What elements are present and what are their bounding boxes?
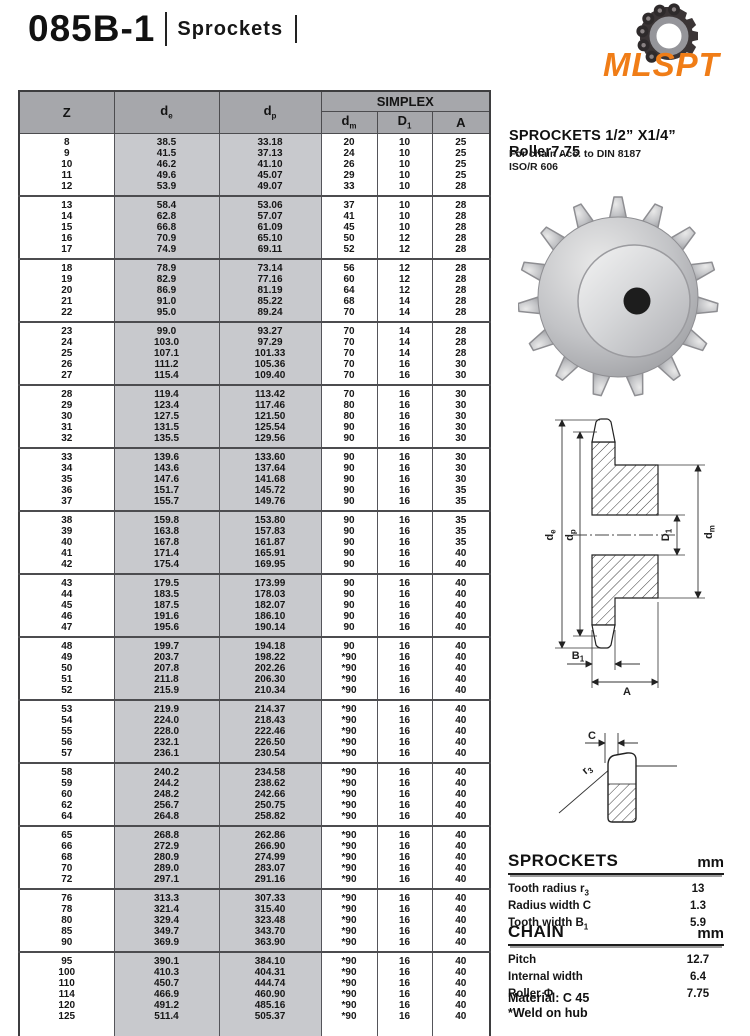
table-cell: 90 <box>321 589 377 600</box>
table-row: 1046.241.10261025 <box>19 159 490 170</box>
table-cell: 39 <box>19 526 114 537</box>
table-cell: 410.3 <box>114 967 219 978</box>
table-cell: 16 <box>377 1000 432 1011</box>
table-cell: 90 <box>321 611 377 622</box>
table-cell: 16 <box>377 1011 432 1036</box>
table-cell: 60 <box>19 789 114 800</box>
table-cell: 147.6 <box>114 474 219 485</box>
chain-spec-heading: CHAIN <box>508 922 564 942</box>
table-row: 25107.1101.33701428 <box>19 348 490 359</box>
table-cell: 30 <box>432 400 490 411</box>
table-cell: 52 <box>19 685 114 700</box>
table-cell: 236.1 <box>114 748 219 763</box>
table-cell: 46 <box>19 611 114 622</box>
table-row: 35147.6141.68901630 <box>19 474 490 485</box>
table-cell: 40 <box>432 763 490 778</box>
spec-value: 13 <box>672 883 724 900</box>
table-cell: 70 <box>321 385 377 400</box>
table-cell: 171.4 <box>114 548 219 559</box>
table-cell: 16 <box>377 715 432 726</box>
row-group: 838.533.18201025941.537.132410251046.241… <box>19 133 490 196</box>
table-cell: 16 <box>377 411 432 422</box>
table-cell: 28 <box>432 259 490 274</box>
table-row: 941.537.13241025 <box>19 148 490 159</box>
table-cell: 135.5 <box>114 433 219 448</box>
dimension-table-wrap: Z de dp SIMPLEX dm D1 A 838.533.18201025… <box>18 90 491 1036</box>
table-cell: 272.9 <box>114 841 219 852</box>
row-group: 53219.9214.37*90164054224.0218.43*901640… <box>19 700 490 763</box>
table-cell: *90 <box>321 978 377 989</box>
table-cell: 199.7 <box>114 637 219 652</box>
table-row: 31131.5125.54901630 <box>19 422 490 433</box>
table-row: 29123.4117.46801630 <box>19 400 490 411</box>
table-cell: 37 <box>321 196 377 211</box>
table-cell: 149.76 <box>219 496 321 511</box>
table-cell: 16 <box>377 863 432 874</box>
table-row: 26111.2105.36701630 <box>19 359 490 370</box>
table-cell: 97.29 <box>219 337 321 348</box>
table-cell: 28 <box>432 233 490 244</box>
table-cell: 28 <box>432 285 490 296</box>
table-cell: 40 <box>432 952 490 967</box>
table-cell: 250.75 <box>219 800 321 811</box>
table-cell: 29 <box>321 170 377 181</box>
table-cell: 16 <box>377 385 432 400</box>
table-cell: 120 <box>19 1000 114 1011</box>
table-row: 55228.0222.46*901640 <box>19 726 490 737</box>
table-cell: 34 <box>19 463 114 474</box>
table-cell: 16 <box>377 622 432 637</box>
table-cell: 109.40 <box>219 370 321 385</box>
table-row: 85349.7343.70*901640 <box>19 926 490 937</box>
table-cell: 40 <box>432 789 490 800</box>
table-cell: 70 <box>321 370 377 385</box>
table-row: 1774.969.11521228 <box>19 244 490 259</box>
table-cell: 18 <box>19 259 114 274</box>
table-cell: 41 <box>19 548 114 559</box>
table-cell: 280.9 <box>114 852 219 863</box>
table-cell: 195.6 <box>114 622 219 637</box>
table-cell: 16 <box>377 674 432 685</box>
table-cell: 20 <box>321 133 377 148</box>
table-cell: 450.7 <box>114 978 219 989</box>
table-cell: 248.2 <box>114 789 219 800</box>
table-cell: 80 <box>19 915 114 926</box>
table-row: 2399.093.27701428 <box>19 322 490 337</box>
table-cell: 40 <box>432 600 490 611</box>
table-cell: 16 <box>377 811 432 826</box>
row-group: 76313.3307.33*90164078321.4315.40*901640… <box>19 889 490 952</box>
table-cell: 78 <box>19 904 114 915</box>
table-cell: 16 <box>377 685 432 700</box>
dim-label-b1: B1 <box>572 650 585 664</box>
table-cell: 70 <box>321 348 377 359</box>
row-group: 38159.8153.8090163539163.8157.8390163540… <box>19 511 490 574</box>
product-standard-line1: For chain Acc. to DIN 8187 <box>509 148 641 160</box>
table-cell: 50 <box>19 663 114 674</box>
table-cell: 21 <box>19 296 114 307</box>
table-row: 1253.949.07331028 <box>19 181 490 196</box>
table-cell: 163.8 <box>114 526 219 537</box>
table-cell: *90 <box>321 1000 377 1011</box>
table-cell: 12 <box>377 259 432 274</box>
table-cell: 30 <box>19 411 114 422</box>
table-cell: 70 <box>321 322 377 337</box>
table-cell: 16 <box>377 589 432 600</box>
table-cell: 10 <box>377 159 432 170</box>
table-row: 58240.2234.58*901640 <box>19 763 490 778</box>
table-row: 68280.9274.99*901640 <box>19 852 490 863</box>
spec-row-tooth-radius: Tooth radius r3 13 <box>508 883 724 900</box>
table-cell: 226.50 <box>219 737 321 748</box>
table-cell: 165.91 <box>219 548 321 559</box>
table-cell: 40 <box>432 874 490 889</box>
divider <box>165 12 167 46</box>
table-cell: 40 <box>432 926 490 937</box>
table-cell: 61.09 <box>219 222 321 233</box>
table-cell: 210.34 <box>219 685 321 700</box>
table-cell: 28 <box>432 244 490 259</box>
table-cell: 16 <box>377 778 432 789</box>
table-cell: *90 <box>321 889 377 904</box>
table-cell: *90 <box>321 748 377 763</box>
table-cell: 99.0 <box>114 322 219 337</box>
table-cell: *90 <box>321 863 377 874</box>
table-row: 37155.7149.76901635 <box>19 496 490 511</box>
table-cell: 90 <box>321 463 377 474</box>
table-cell: 12 <box>377 285 432 296</box>
table-cell: 65 <box>19 826 114 841</box>
table-cell: 297.1 <box>114 874 219 889</box>
table-row: 47195.6190.14901640 <box>19 622 490 637</box>
table-cell: 256.7 <box>114 800 219 811</box>
table-cell: 16 <box>377 400 432 411</box>
table-cell: 28 <box>432 307 490 322</box>
table-cell: 56 <box>19 737 114 748</box>
table-cell: 35 <box>432 511 490 526</box>
table-cell: 85.22 <box>219 296 321 307</box>
table-cell: 22 <box>19 307 114 322</box>
table-cell: 42 <box>19 559 114 574</box>
table-cell: *90 <box>321 915 377 926</box>
table-cell: 16 <box>377 511 432 526</box>
table-row: 57236.1230.54*901640 <box>19 748 490 763</box>
table-cell: 59 <box>19 778 114 789</box>
table-cell: 28 <box>432 181 490 196</box>
table-cell: 51 <box>19 674 114 685</box>
table-cell: 70 <box>321 307 377 322</box>
table-cell: 16 <box>377 611 432 622</box>
table-row: 46191.6186.10901640 <box>19 611 490 622</box>
table-cell: 155.7 <box>114 496 219 511</box>
table-cell: 50 <box>321 233 377 244</box>
table-cell: 30 <box>432 359 490 370</box>
table-cell: 283.07 <box>219 863 321 874</box>
table-cell: 215.9 <box>114 685 219 700</box>
table-cell: 121.50 <box>219 411 321 422</box>
table-cell: 232.1 <box>114 737 219 748</box>
table-cell: 262.86 <box>219 826 321 841</box>
spec-value: 7.75 <box>672 988 724 1005</box>
table-row: 62256.7250.75*901640 <box>19 800 490 811</box>
table-cell: 90 <box>321 511 377 526</box>
table-cell: 14 <box>377 337 432 348</box>
table-cell: 8 <box>19 133 114 148</box>
spec-value: 1.3 <box>672 900 724 917</box>
table-cell: 65.10 <box>219 233 321 244</box>
table-cell: 313.3 <box>114 889 219 904</box>
table-cell: 16 <box>377 422 432 433</box>
table-cell: 202.26 <box>219 663 321 674</box>
table-row: 40167.8161.87901635 <box>19 537 490 548</box>
table-row: 45187.5182.07901640 <box>19 600 490 611</box>
table-cell: 16 <box>377 841 432 852</box>
table-cell: 35 <box>432 526 490 537</box>
table-cell: 32 <box>19 433 114 448</box>
row-group: 65268.8262.86*90164066272.9266.90*901640… <box>19 826 490 889</box>
col-header-dp: dp <box>219 91 321 133</box>
table-cell: 30 <box>432 448 490 463</box>
table-cell: 41 <box>321 211 377 222</box>
table-cell: 157.83 <box>219 526 321 537</box>
table-cell: 105.36 <box>219 359 321 370</box>
table-cell: 123.4 <box>114 400 219 411</box>
table-row: 2191.085.22681428 <box>19 296 490 307</box>
table-cell: 64 <box>321 285 377 296</box>
table-cell: 384.10 <box>219 952 321 967</box>
table-row: 1149.645.07291025 <box>19 170 490 181</box>
table-cell: 35 <box>19 474 114 485</box>
table-cell: 143.6 <box>114 463 219 474</box>
table-cell: 90 <box>321 485 377 496</box>
table-cell: 16 <box>19 233 114 244</box>
table-cell: 207.8 <box>114 663 219 674</box>
table-cell: 16 <box>377 537 432 548</box>
table-cell: 40 <box>432 611 490 622</box>
table-cell: 14 <box>377 296 432 307</box>
table-row: 100410.3404.31*901640 <box>19 967 490 978</box>
table-cell: 30 <box>432 463 490 474</box>
table-cell: 16 <box>377 748 432 763</box>
table-cell: *90 <box>321 926 377 937</box>
table-cell: *90 <box>321 674 377 685</box>
table-cell: *90 <box>321 967 377 978</box>
table-cell: 349.7 <box>114 926 219 937</box>
table-cell: 35 <box>432 537 490 548</box>
table-cell: 16 <box>377 433 432 448</box>
table-cell: 16 <box>377 874 432 889</box>
table-cell: 151.7 <box>114 485 219 496</box>
table-cell: 45 <box>19 600 114 611</box>
col-header-z: Z <box>19 91 114 133</box>
table-cell: 16 <box>377 637 432 652</box>
spec-value: 6.4 <box>672 971 724 988</box>
catalog-page: 085B-1 Sprockets <box>0 0 750 1036</box>
table-row: 76313.3307.33*901640 <box>19 889 490 904</box>
table-cell: 511.4 <box>114 1011 219 1036</box>
table-cell: 28 <box>432 296 490 307</box>
table-cell: 190.14 <box>219 622 321 637</box>
row-group: 1878.973.145612281982.977.166012282086.9… <box>19 259 490 322</box>
table-cell: 16 <box>377 726 432 737</box>
table-cell: *90 <box>321 800 377 811</box>
table-cell: 390.1 <box>114 952 219 967</box>
table-cell: 12 <box>19 181 114 196</box>
table-cell: 31 <box>19 422 114 433</box>
table-cell: 12 <box>377 233 432 244</box>
table-cell: 56 <box>321 259 377 274</box>
row-group: 58240.2234.58*90164059244.2238.62*901640… <box>19 763 490 826</box>
table-cell: 28 <box>432 348 490 359</box>
table-cell: 43 <box>19 574 114 589</box>
table-cell: 321.4 <box>114 904 219 915</box>
brand-name: MLSPT <box>603 48 748 81</box>
table-cell: 198.22 <box>219 652 321 663</box>
table-cell: 466.9 <box>114 989 219 1000</box>
table-row: 78321.4315.40*901640 <box>19 904 490 915</box>
table-cell: 25 <box>432 170 490 181</box>
table-cell: *90 <box>321 811 377 826</box>
table-cell: *90 <box>321 737 377 748</box>
weld-note: *Weld on hub <box>508 1006 588 1020</box>
table-cell: 16 <box>377 737 432 748</box>
table-cell: 242.66 <box>219 789 321 800</box>
table-cell: *90 <box>321 700 377 715</box>
table-cell: 40 <box>432 889 490 904</box>
table-cell: 40 <box>432 637 490 652</box>
table-cell: 90 <box>321 537 377 548</box>
table-cell: 64 <box>19 811 114 826</box>
table-cell: 33.18 <box>219 133 321 148</box>
table-cell: 90 <box>321 574 377 589</box>
table-row: 24103.097.29701428 <box>19 337 490 348</box>
table-cell: 40 <box>432 978 490 989</box>
table-cell: 38 <box>19 511 114 526</box>
table-cell: 46.2 <box>114 159 219 170</box>
sprockets-spec-header: SPROCKETS mm <box>508 851 724 875</box>
table-cell: 228.0 <box>114 726 219 737</box>
table-cell: 13 <box>19 196 114 211</box>
table-cell: 16 <box>377 600 432 611</box>
product-standard-line2: ISO/R 606 <box>509 161 558 173</box>
table-row: 1670.965.10501228 <box>19 233 490 244</box>
col-header-d1: D1 <box>377 111 432 133</box>
table-cell: 19 <box>19 274 114 285</box>
table-cell: 206.30 <box>219 674 321 685</box>
table-cell: 40 <box>432 967 490 978</box>
table-cell: 30 <box>432 385 490 400</box>
table-cell: 145.72 <box>219 485 321 496</box>
row-group: 1358.453.063710281462.857.074110281566.8… <box>19 196 490 259</box>
table-row: 48199.7194.18901640 <box>19 637 490 652</box>
table-row: 2086.981.19641228 <box>19 285 490 296</box>
table-cell: 40 <box>432 548 490 559</box>
table-cell: 115.4 <box>114 370 219 385</box>
table-cell: 90 <box>321 622 377 637</box>
table-cell: 291.16 <box>219 874 321 889</box>
table-cell: 48 <box>19 637 114 652</box>
table-row: 51211.8206.30*901640 <box>19 674 490 685</box>
table-cell: 11 <box>19 170 114 181</box>
col-header-simplex: SIMPLEX <box>321 91 490 111</box>
table-cell: 16 <box>377 937 432 952</box>
table-cell: 40 <box>432 726 490 737</box>
table-cell: 16 <box>377 574 432 589</box>
table-cell: 16 <box>377 474 432 485</box>
table-cell: *90 <box>321 726 377 737</box>
table-cell: 47 <box>19 622 114 637</box>
dim-label-c: C <box>588 730 596 742</box>
table-cell: 444.74 <box>219 978 321 989</box>
table-row: 125511.4505.37*901640 <box>19 1011 490 1036</box>
table-cell: *90 <box>321 826 377 841</box>
table-cell: 16 <box>377 559 432 574</box>
table-row: 38159.8153.80901635 <box>19 511 490 526</box>
table-cell: 78.9 <box>114 259 219 274</box>
table-cell: 25 <box>19 348 114 359</box>
table-cell: 90 <box>321 448 377 463</box>
table-cell: 62 <box>19 800 114 811</box>
table-cell: 40 <box>432 559 490 574</box>
table-cell: 10 <box>377 222 432 233</box>
table-cell: 137.64 <box>219 463 321 474</box>
table-cell: *90 <box>321 715 377 726</box>
table-cell: 58 <box>19 763 114 778</box>
table-cell: 110 <box>19 978 114 989</box>
table-cell: 68 <box>19 852 114 863</box>
table-cell: 404.31 <box>219 967 321 978</box>
table-cell: 40 <box>432 915 490 926</box>
table-cell: 40 <box>19 537 114 548</box>
table-cell: 460.90 <box>219 989 321 1000</box>
table-cell: 80 <box>321 411 377 422</box>
table-cell: *90 <box>321 663 377 674</box>
table-cell: 268.8 <box>114 826 219 841</box>
table-cell: 95.0 <box>114 307 219 322</box>
table-cell: 40 <box>432 574 490 589</box>
table-cell: 234.58 <box>219 763 321 778</box>
table-row: 70289.0283.07*901640 <box>19 863 490 874</box>
table-cell: 111.2 <box>114 359 219 370</box>
table-row: 32135.5129.56901630 <box>19 433 490 448</box>
table-row: 56232.1226.50*901640 <box>19 737 490 748</box>
table-cell: 117.46 <box>219 400 321 411</box>
table-cell: 485.16 <box>219 1000 321 1011</box>
table-cell: 16 <box>377 526 432 537</box>
table-row: 1358.453.06371028 <box>19 196 490 211</box>
table-cell: 329.4 <box>114 915 219 926</box>
table-cell: 186.10 <box>219 611 321 622</box>
table-cell: 25 <box>432 159 490 170</box>
table-cell: 55 <box>19 726 114 737</box>
table-cell: 107.1 <box>114 348 219 359</box>
table-cell: 219.9 <box>114 700 219 715</box>
table-cell: 73.14 <box>219 259 321 274</box>
table-cell: 70.9 <box>114 233 219 244</box>
table-row: 72297.1291.16*901640 <box>19 874 490 889</box>
table-cell: 307.33 <box>219 889 321 904</box>
table-cell: *90 <box>321 652 377 663</box>
table-cell: 274.99 <box>219 852 321 863</box>
table-cell: 66 <box>19 841 114 852</box>
table-cell: 12 <box>377 274 432 285</box>
table-cell: *90 <box>321 789 377 800</box>
row-group: 48199.7194.1890164049203.7198.22*9016405… <box>19 637 490 700</box>
table-cell: 30 <box>432 474 490 485</box>
table-row: 95390.1384.10*901640 <box>19 952 490 967</box>
table-cell: *90 <box>321 989 377 1000</box>
table-cell: 343.70 <box>219 926 321 937</box>
